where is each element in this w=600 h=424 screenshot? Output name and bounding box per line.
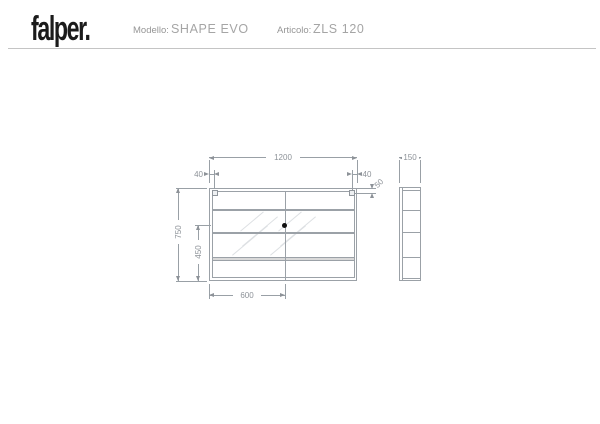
extension-line: [176, 281, 207, 282]
arrowhead: [280, 293, 285, 297]
dim-depth-label: 150: [402, 153, 419, 162]
arrowhead: [352, 156, 357, 160]
mounting-bracket-left: [212, 190, 218, 196]
dim-left-offset-label: 40: [190, 170, 203, 179]
dim-half-width-label: 600: [233, 291, 261, 300]
arrowhead: [196, 276, 200, 281]
dim-right-offset-label: 40: [363, 170, 376, 179]
side-view-shelf-line: [402, 257, 420, 258]
article-value: ZLS 120: [313, 22, 364, 36]
arrowhead: [196, 225, 200, 230]
mounting-bracket-right: [349, 190, 355, 196]
dim-height-label: 750: [174, 220, 184, 244]
extension-line: [420, 160, 421, 183]
arrowhead: [214, 172, 219, 176]
header-divider: [8, 48, 596, 49]
arrowhead: [347, 172, 352, 176]
dim-width-label: 1200: [266, 153, 300, 162]
spec-sheet: falper. Modello: SHAPE EVO Articolo: ZLS…: [0, 0, 600, 424]
side-view-door-line: [402, 188, 403, 280]
falper-logo: falper.: [31, 12, 90, 46]
shelf-line-top: [213, 209, 354, 212]
arrowhead: [176, 276, 180, 281]
side-view-top-inner-line: [402, 190, 420, 191]
model-value: SHAPE EVO: [171, 22, 249, 36]
arrowhead: [209, 156, 214, 160]
extension-line: [209, 160, 210, 183]
side-view-shelf-line: [402, 232, 420, 233]
model-label: Modello:: [133, 25, 169, 36]
side-view-bottom-inner-line: [402, 278, 420, 279]
arrowhead: [370, 193, 374, 198]
arrowhead: [176, 188, 180, 193]
door-center-line: [285, 191, 286, 281]
shelf-band-lower: [213, 257, 354, 262]
article-label: Articolo:: [277, 25, 311, 36]
extension-line: [176, 188, 207, 189]
dim-lower-label: 450: [194, 240, 204, 264]
extension-line: [399, 160, 400, 183]
arrowhead: [357, 172, 362, 176]
arrowhead: [204, 172, 209, 176]
shelf-line-middle: [213, 232, 354, 235]
arrowhead: [209, 293, 214, 297]
side-view-shelf-line: [402, 210, 420, 211]
front-view-inner-frame: [212, 191, 355, 278]
